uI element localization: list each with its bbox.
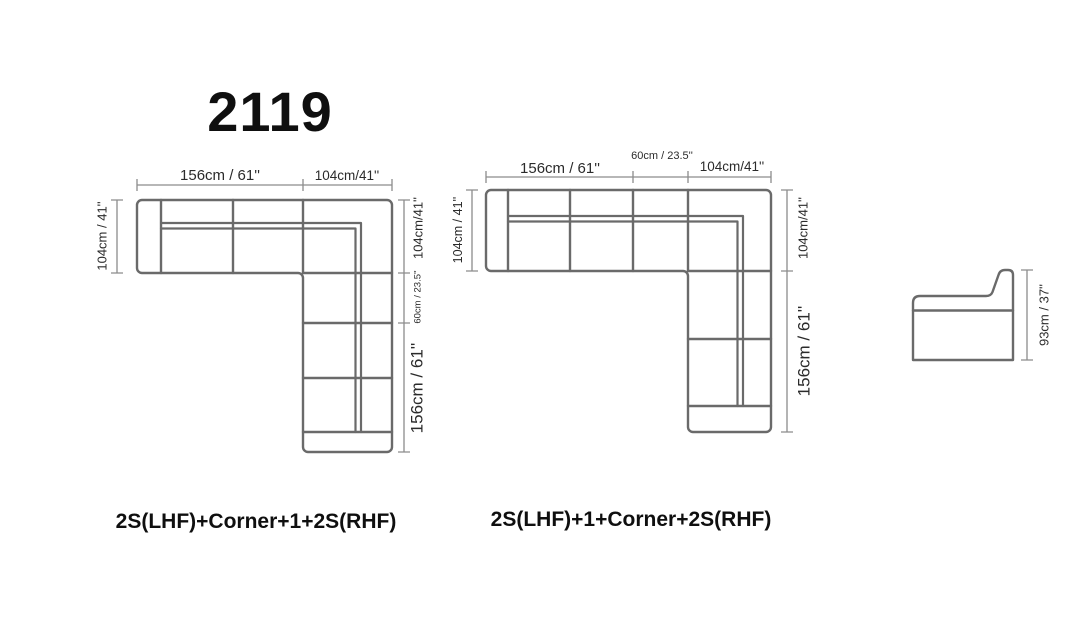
sofa-right-top-view bbox=[486, 190, 771, 432]
dim-label-left: 104cm / 41'' bbox=[95, 201, 110, 270]
sofa-side-profile bbox=[913, 270, 1013, 360]
sofa-right-backrest-line-outer bbox=[508, 216, 743, 406]
sofa-left-backrest-line-outer bbox=[161, 223, 361, 432]
configuration-label-right: 2S(LHF)+1+Corner+2S(RHF) bbox=[491, 508, 772, 531]
dim-label-right-bottom: 156cm / 61'' bbox=[795, 306, 814, 397]
dim-label-left: 104cm / 41'' bbox=[451, 197, 465, 264]
sofa-side-view bbox=[913, 270, 1013, 360]
sofa-left-dimension-lines bbox=[111, 179, 410, 452]
dim-line-height bbox=[1021, 270, 1033, 360]
dim-label-top-left: 156cm / 61'' bbox=[180, 167, 260, 184]
dim-label-top-right: 104cm/41'' bbox=[700, 159, 764, 174]
sofa-right-outline bbox=[486, 190, 771, 432]
dim-line-left bbox=[111, 200, 123, 273]
sofa-side-dimension-lines bbox=[1021, 270, 1033, 360]
dim-label-right-middle: 60cm / 23.5'' bbox=[413, 270, 424, 323]
sofa-right-backrest-line-inner bbox=[508, 222, 738, 407]
dim-label-right-top: 104cm/41'' bbox=[411, 197, 426, 259]
dim-label-top-right: 104cm/41'' bbox=[315, 168, 379, 183]
dim-label-top-middle: 60cm / 23.5'' bbox=[631, 150, 693, 162]
dim-label-right-top: 104cm/41'' bbox=[796, 197, 811, 259]
sofa-left-top-view bbox=[137, 200, 392, 452]
sofa-spec-sheet: 2119 156cm / 61'' 104cm/41'' 104cm / 41'… bbox=[0, 0, 1090, 640]
dim-label-right-bottom: 156cm / 61'' bbox=[408, 343, 427, 434]
model-number-title: 2119 bbox=[207, 80, 333, 143]
configuration-label-left: 2S(LHF)+Corner+1+2S(RHF) bbox=[116, 510, 397, 533]
dim-line-right bbox=[781, 190, 793, 432]
dim-label-height: 93cm / 37'' bbox=[1037, 284, 1052, 346]
dim-label-top-left: 156cm / 61'' bbox=[520, 160, 600, 177]
sofa-left-backrest-line-inner bbox=[161, 229, 356, 433]
sofa-left-outline bbox=[137, 200, 392, 452]
dim-line-left bbox=[466, 190, 478, 271]
spec-diagram-canvas: 2119 156cm / 61'' 104cm/41'' 104cm / 41'… bbox=[0, 0, 1090, 640]
